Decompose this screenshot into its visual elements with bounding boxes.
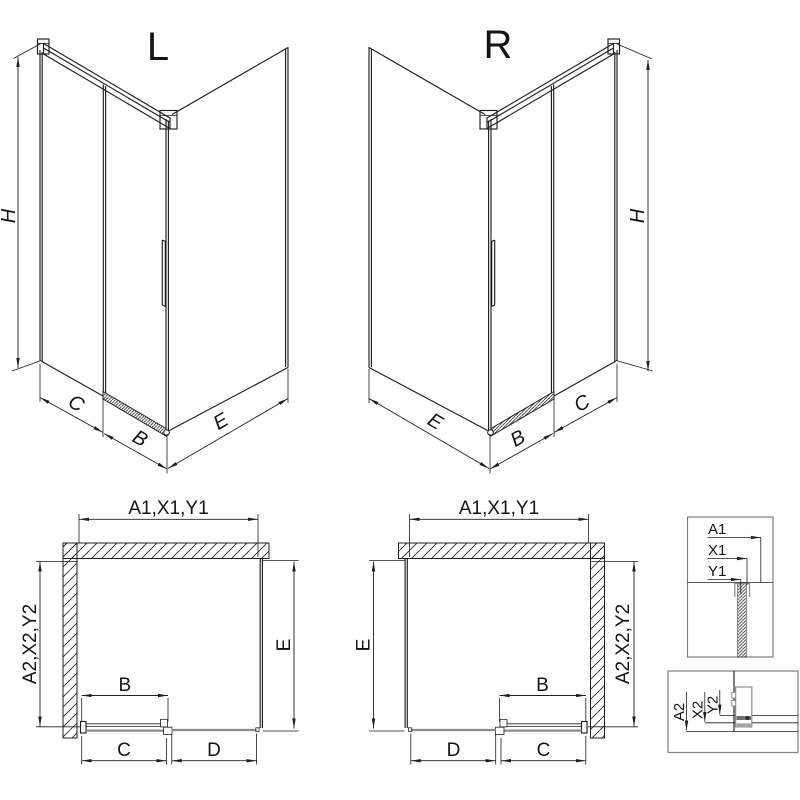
wall-profile-section <box>738 583 747 658</box>
detail-label-y2: Y2 <box>705 696 722 714</box>
dim-line-e <box>369 399 489 469</box>
dim-label-b: B <box>507 426 529 452</box>
dim-label-d: D <box>207 740 221 761</box>
dim-line-e <box>168 399 288 469</box>
detail-label-x1: X1 <box>708 542 726 559</box>
dim-label-c: C <box>570 390 594 417</box>
screw-icon <box>746 716 750 720</box>
dimension-lines <box>12 44 288 474</box>
dim-label-c: C <box>537 740 551 761</box>
dim-label-h: H <box>0 208 20 223</box>
dim-label-a2: A2,X2,Y2 <box>613 604 634 684</box>
iso-view-left: L H C B E <box>0 25 288 474</box>
detail-label-a1: A1 <box>708 521 726 538</box>
detail-label-y1: Y1 <box>708 563 726 580</box>
iso-view-right: R H E B C <box>369 23 653 474</box>
dim-label-a1: A1,X1,Y1 <box>459 498 539 519</box>
dim-label-h: H <box>627 208 649 223</box>
shower-enclosure-technical-drawing: L H C B E R H E B C <box>0 0 800 800</box>
dim-label-a1: A1,X1,Y1 <box>128 498 208 519</box>
dim-label-e: E <box>354 639 375 652</box>
detail-measure-bottom: A2 X2 Y2 <box>668 671 798 753</box>
dim-label-e: E <box>274 639 295 652</box>
fixed-panel <box>409 728 496 732</box>
dim-label-e: E <box>424 409 447 435</box>
door-handle <box>492 240 495 307</box>
sliding-door-assembly <box>496 719 588 734</box>
glass-panel-edges <box>369 47 617 432</box>
bottom-track <box>103 392 169 437</box>
dim-label-b: B <box>118 675 131 696</box>
bottom-track <box>488 392 554 437</box>
bottom-rail-profile <box>732 687 752 728</box>
dim-label-c: C <box>117 740 131 761</box>
side-glass-panel <box>405 559 407 729</box>
drawing-canvas: L H C B E R H E B C <box>0 0 800 800</box>
fixed-panel <box>172 728 259 732</box>
detail-measure-top: A1 X1 Y1 <box>688 517 774 657</box>
door-handle <box>162 240 165 307</box>
wall-right <box>591 543 605 738</box>
sliding-door-assembly <box>81 719 173 734</box>
wall-top <box>399 543 605 559</box>
plan-view-right: A1,X1,Y1 A2,X2,Y2 E B D C <box>354 498 639 765</box>
dim-label-b: B <box>129 426 151 452</box>
glass-panel-edges <box>40 47 288 432</box>
dim-label-d: D <box>447 740 461 761</box>
dim-label-a2: A2,X2,Y2 <box>20 604 41 684</box>
side-glass-panel <box>260 559 262 729</box>
detail-label-a2: A2 <box>671 703 688 721</box>
detail-frame <box>688 517 774 657</box>
wall-top <box>63 543 269 559</box>
dim-label-e: E <box>210 409 233 435</box>
dim-label-b: B <box>536 675 549 696</box>
plan-view-left: A1,X1,Y1 A2,X2,Y2 E B C D <box>20 498 299 765</box>
wall-left <box>63 543 77 738</box>
variant-label-right: R <box>484 23 513 67</box>
variant-label-left: L <box>147 25 169 69</box>
